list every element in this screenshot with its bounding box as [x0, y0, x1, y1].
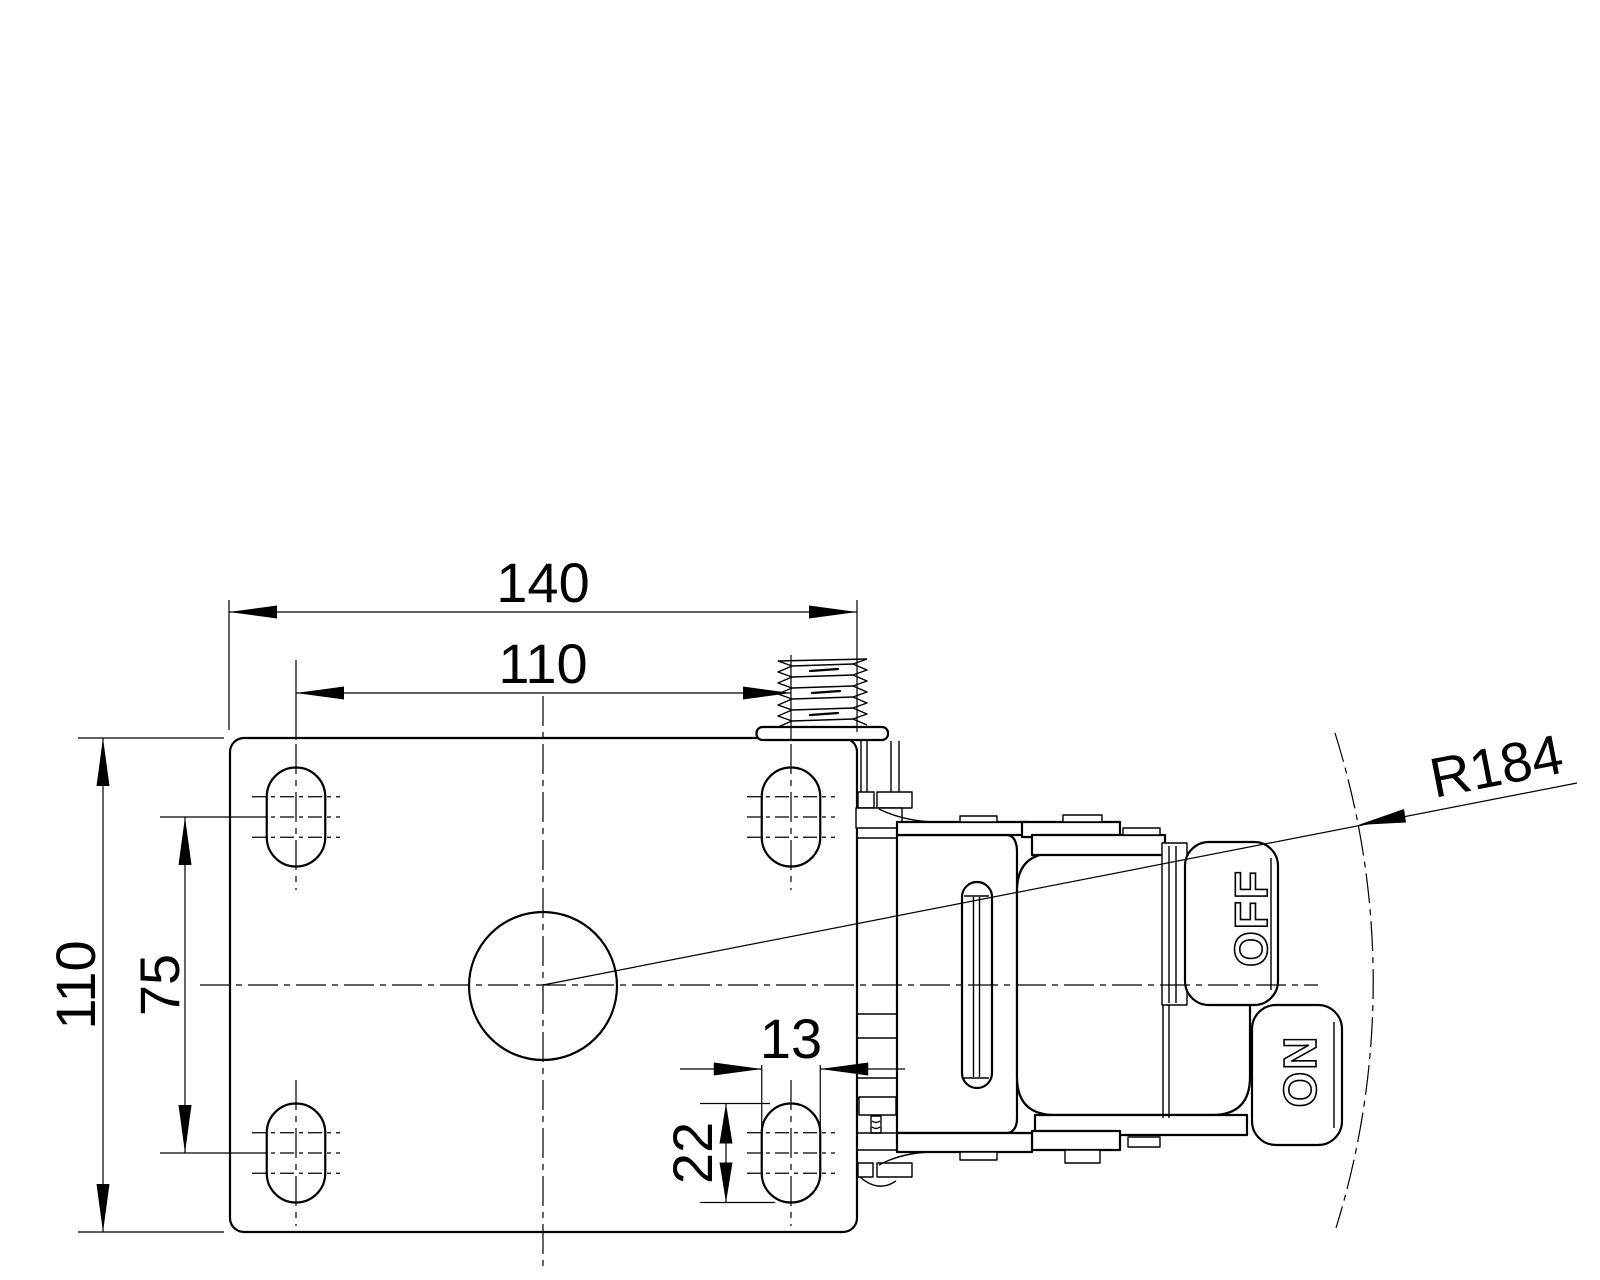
dim-110-left-text: 110 [44, 940, 107, 1029]
brake-off-label: OFF [1225, 869, 1277, 967]
dim-13-text: 13 [760, 1007, 822, 1070]
brake-pedal-on: ON [1252, 1005, 1342, 1145]
dim-110-top-text: 110 [498, 632, 587, 695]
stem-collar [757, 727, 889, 740]
brake-on-label: ON [1274, 1035, 1326, 1108]
radius-arrowhead [1358, 809, 1406, 825]
swivel-fork-body [897, 835, 1017, 1133]
radius-label: R184 [1424, 722, 1567, 810]
technical-drawing-canvas: OFF ON R184 140 110 [0, 0, 1600, 1280]
swivel-radius-arc [1335, 733, 1373, 1228]
caster-drawing: OFF ON R184 140 110 [0, 0, 1600, 1280]
dim-22-text: 22 [661, 1122, 724, 1184]
brake-pedal-off: OFF [1185, 842, 1278, 1005]
dim-140-text: 140 [496, 551, 589, 614]
threaded-stem [757, 659, 889, 740]
dim-75-text: 75 [128, 954, 191, 1016]
